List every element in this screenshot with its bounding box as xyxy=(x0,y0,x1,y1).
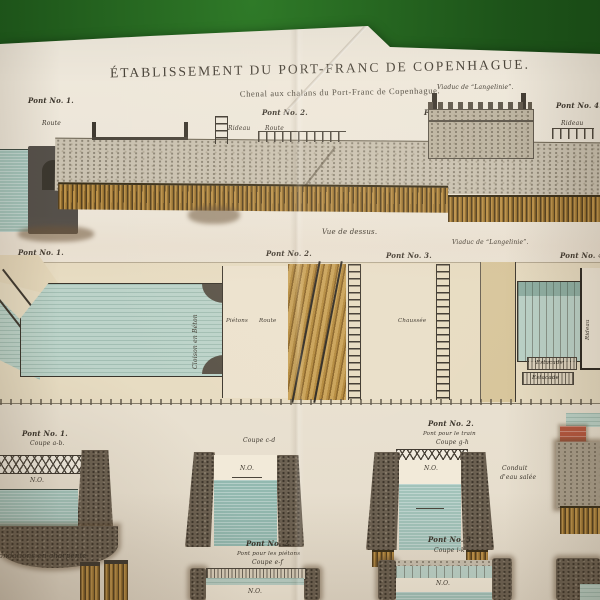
section5-level-mark: N.O. xyxy=(248,589,262,596)
bridge2-roadway-band xyxy=(252,266,289,398)
section6-cut-label: Coupe i-k xyxy=(434,548,465,555)
plan-chaussee-label: Chaussée xyxy=(398,318,426,324)
section2-level-mark: N.O. xyxy=(240,466,254,473)
viaduct-cornice-line xyxy=(429,120,533,122)
plan-khaki-band xyxy=(480,262,516,402)
plan-rideau-label: Rideau xyxy=(585,300,591,340)
elevation-pont1-label: Pont No. 1. xyxy=(28,97,74,105)
timber-piles-row-right xyxy=(448,195,600,222)
section2-wall-left xyxy=(185,452,215,547)
section3-wall-left xyxy=(366,452,400,550)
page-title: ÉTABLISSEMENT DU PORT-FRANC DE COPENHAGU… xyxy=(40,55,600,83)
section5-cut-label: Coupe e-f xyxy=(252,560,283,567)
paper-sheet: ÉTABLISSEMENT DU PORT-FRANC DE COPENHAGU… xyxy=(0,0,600,600)
plan-pont4-label: Pont No. 4. xyxy=(560,252,600,260)
section5-fuzz-right xyxy=(304,568,320,600)
photo-of-plan: ÉTABLISSEMENT DU PORT-FRANC DE COPENHAGU… xyxy=(0,0,600,600)
section3-depth-line xyxy=(416,508,444,509)
signal-ladder xyxy=(215,116,228,144)
section2-water xyxy=(214,480,277,546)
section7-teal-fragment xyxy=(580,584,600,600)
viaduct-block xyxy=(428,109,534,159)
bridge2-footway-band xyxy=(222,266,254,398)
section1-title: Pont No. 1. xyxy=(22,430,68,438)
elevation-pont4-label: Pont No. 4. xyxy=(556,102,600,110)
estacade-label-2: Estacade xyxy=(532,375,559,381)
section6-teal-grid xyxy=(396,566,492,578)
conduit-label-line2: d'eau salée xyxy=(500,475,536,482)
plan-pont3-label: Pont No. 3. xyxy=(386,252,432,260)
section3-level-mark: N.O. xyxy=(424,466,438,473)
section1-truss xyxy=(0,455,84,474)
plan-pietons-label: Piétons xyxy=(226,318,248,324)
bridge4-railing xyxy=(552,128,594,139)
section3-cut-label: Coupe g-h xyxy=(436,440,469,447)
plan-gap-band xyxy=(362,264,383,400)
plan-ladder-band-a xyxy=(348,264,361,400)
bridge1-deck-line xyxy=(92,137,188,140)
section3-note: Pont pour le train xyxy=(423,431,476,437)
earth-fuzz-under-piles xyxy=(188,206,240,224)
section2-cut-label: Coupe c-d xyxy=(243,438,275,445)
section1-level-mark: N.O. xyxy=(30,478,44,485)
plan-view-label: Vue de dessus. xyxy=(322,228,377,236)
section4-piles xyxy=(560,506,600,534)
estacade-strip-2: Estacade xyxy=(522,372,574,385)
section6-title: Pont No. 3. xyxy=(428,536,474,544)
section4-stone-wall xyxy=(556,442,600,508)
paper-vertical-crease xyxy=(290,28,304,600)
elevation-route-left-label: Route xyxy=(42,121,61,128)
viaduct-crenellation xyxy=(428,102,532,109)
foundations-note: Fondations en charpente xyxy=(0,552,87,560)
section3-title: Pont No. 2. xyxy=(428,420,474,428)
elevation-rideau2-label: Rideau xyxy=(228,126,250,133)
plan-route-label: Route xyxy=(259,318,276,324)
plan-pont2-label: Pont No. 2. xyxy=(266,250,312,258)
viaduct-note-label: Viaduc de “Langelinie”. xyxy=(437,85,514,92)
estacade-label-1: Estacade xyxy=(536,360,563,366)
timber-piles-row-left xyxy=(58,182,448,212)
section2-level-line xyxy=(232,477,262,478)
page-subtitle: Chenal aux chalans du Port-Franc de Cope… xyxy=(60,82,600,102)
section1-cut-label: Coupe a-b. xyxy=(30,441,65,448)
pile-stub-1 xyxy=(80,562,100,600)
plan-viaduct-label: Viaduc de “Langelinie”. xyxy=(452,240,529,247)
earth-fuzz-left xyxy=(18,226,94,242)
conduit-label-line1: Conduit xyxy=(502,466,528,473)
section4-teal-top xyxy=(566,413,600,427)
estacade-strip-1: Estacade xyxy=(527,357,577,370)
plan-ladder-band-b xyxy=(436,264,450,400)
pile-stub-2 xyxy=(104,560,128,600)
plan-chaussee-band xyxy=(382,264,434,400)
section1-foundation-earth xyxy=(0,526,118,568)
section6-wall-right xyxy=(492,558,512,600)
plan-channel-rotated-label: Cloison en Béton xyxy=(193,297,200,369)
section6-water xyxy=(396,592,492,600)
section6-wall-left xyxy=(378,560,396,600)
section5-title: Pont No. 2. xyxy=(246,540,292,548)
section6-level-mark: N.O. xyxy=(436,581,450,588)
section5-fuzz-left xyxy=(190,568,206,600)
elevation-rideau4-label: Rideau xyxy=(561,121,583,128)
section3-airband xyxy=(399,460,461,486)
paper-sheet-wrap: ÉTABLISSEMENT DU PORT-FRANC DE COPENHAGU… xyxy=(0,0,600,600)
plan-basin-water xyxy=(517,281,582,362)
